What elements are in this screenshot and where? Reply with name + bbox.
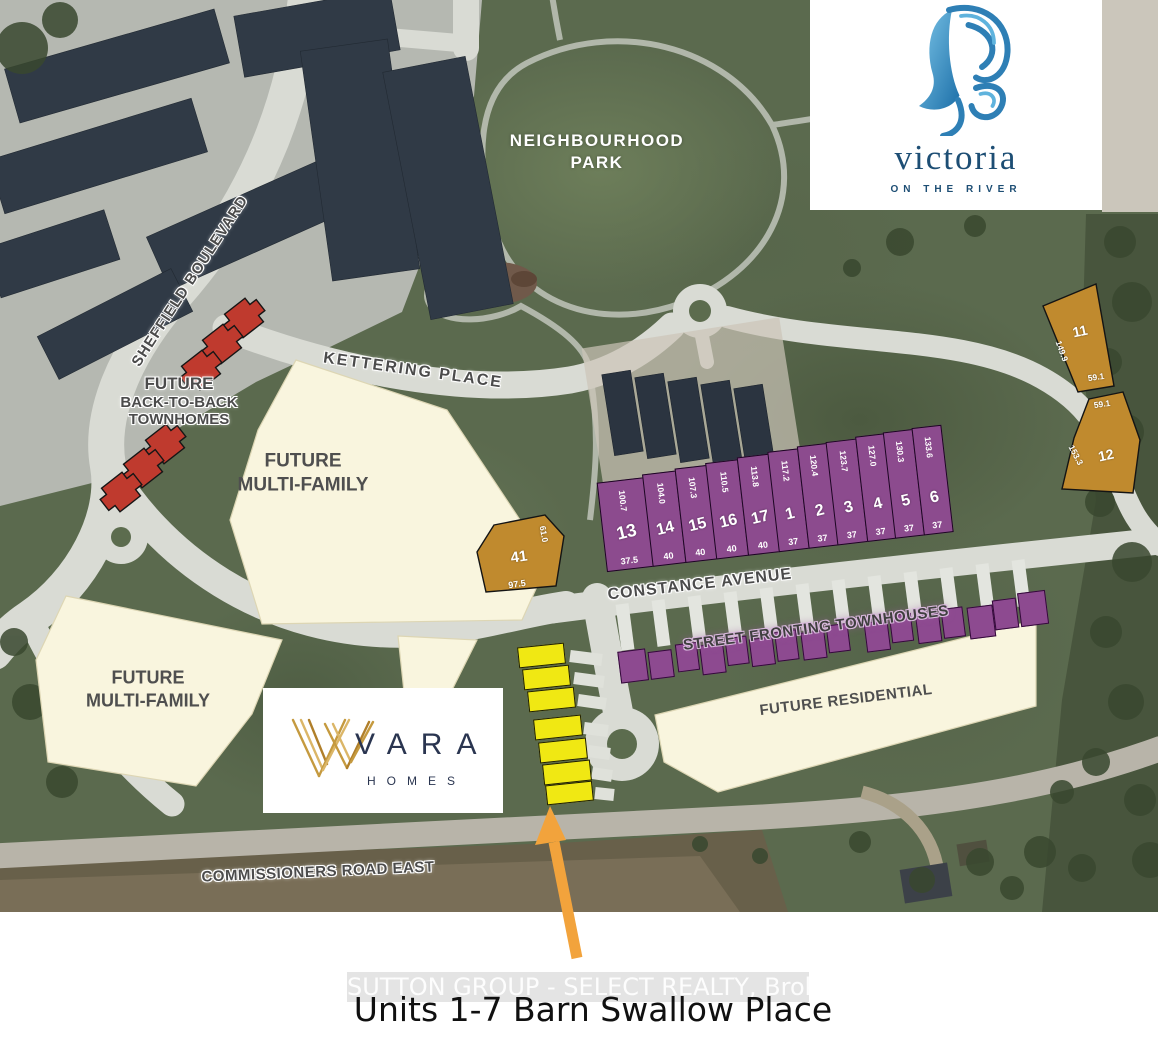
commissioners-road-label: COMMISSIONERS ROAD EAST [201, 858, 435, 885]
lot-41-front: 97.5 [508, 578, 527, 590]
site-plan-page: { "branding": { "victoria": {"wordmark":… [0, 0, 1158, 1048]
unit-block [533, 715, 583, 741]
existing-houses [0, 0, 513, 379]
vara-tagline: HOMES [367, 774, 466, 788]
unit-block [545, 781, 594, 806]
unit-block [517, 643, 566, 669]
lot-11-number: 11 [1071, 322, 1089, 341]
vara-logo-box: VARA HOMES [263, 688, 503, 813]
future-residential-label: FUTURE RESIDENTIAL [759, 681, 934, 719]
lot-13-depth: 100.7 [616, 490, 628, 512]
unit-block [522, 665, 571, 691]
park-label: NEIGHBOURHOOD PARK [482, 130, 712, 174]
vara-wordmark: VARA [355, 728, 490, 762]
victoria-wordmark: victoria [810, 138, 1102, 178]
lot-12-rear: 59.1 [1093, 398, 1111, 410]
victoria-woman-icon [886, 4, 1036, 136]
lot-11-front: 59.1 [1087, 371, 1105, 383]
lot-13-width: 37.5 [606, 553, 653, 568]
pond [457, 262, 537, 304]
parcel-small [398, 636, 477, 692]
multi-family-lower-label: FUTURE MULTI-FAMILY [86, 667, 210, 712]
lot-41-number: 41 [510, 547, 529, 566]
subdivision-ground [0, 0, 482, 506]
beige-strip [1102, 0, 1158, 212]
multi-family-upper-label: FUTURE MULTI-FAMILY [238, 449, 369, 497]
tree-band [1042, 214, 1158, 912]
back-to-back-label: FUTURE BACK-TO-BACK TOWNHOMES [120, 374, 237, 428]
units-caption: Units 1-7 Barn Swallow Place [353, 990, 833, 1029]
lot-12-side: 153.3 [1067, 443, 1086, 466]
lot-13-number: 13 [601, 517, 651, 548]
lot-41-side: 61.0 [538, 525, 551, 543]
aerial-site-map: 100.7 13 37.5 104.0 14 40 107.3 15 40 11… [0, 0, 1158, 912]
victoria-logo-box: victoria ON THE RIVER [810, 0, 1102, 210]
lot-12-number: 12 [1097, 446, 1116, 465]
unit-block [527, 687, 576, 713]
purple-lot-strip: 100.7 13 37.5 104.0 14 40 107.3 15 40 11… [591, 379, 972, 572]
rural-houses [900, 840, 990, 904]
kettering-place-label: KETTERING PLACE [322, 349, 504, 392]
victoria-tagline: ON THE RIVER [810, 184, 1102, 195]
pointer-arrow-icon [535, 806, 577, 958]
lot-11-side: 149.9 [1054, 339, 1071, 362]
constance-avenue-label: CONSTANCE AVENUE [607, 566, 793, 605]
sheffield-boulevard-label: SHEFFIELD BOULEVARD [128, 192, 251, 369]
